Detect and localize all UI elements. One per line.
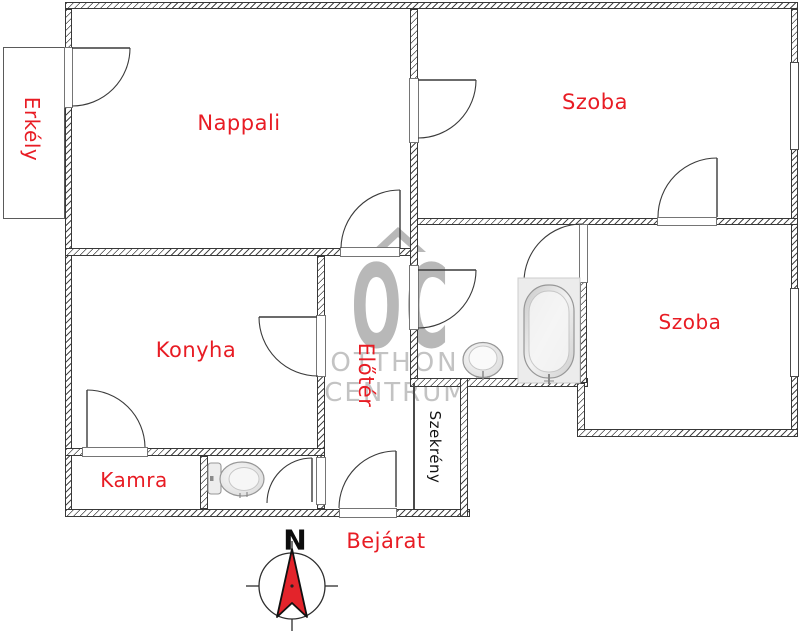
room-label-szoba-top: Szoba (562, 90, 628, 114)
room-label-nappali: Nappali (197, 111, 280, 135)
bathtub-icon (518, 278, 580, 384)
compass-north-label: N (283, 524, 306, 557)
door-swing-arcs (72, 48, 717, 508)
room-label-konyha: Konyha (156, 338, 237, 362)
room-label-eloter: Előtér (354, 343, 378, 408)
room-label-szoba-right: Szoba (659, 310, 722, 334)
room-label-szekreny: Szekrény (426, 411, 444, 484)
entrance-label: Bejárat (346, 529, 425, 553)
floor-plan: OC OTTHON CENTRUM (0, 0, 800, 631)
door-leaves (72, 48, 717, 507)
sink-icon (463, 343, 503, 381)
room-label-kamra: Kamra (100, 468, 167, 492)
toilet-icon (208, 462, 264, 498)
room-label-erkely: Erkély (20, 97, 44, 161)
